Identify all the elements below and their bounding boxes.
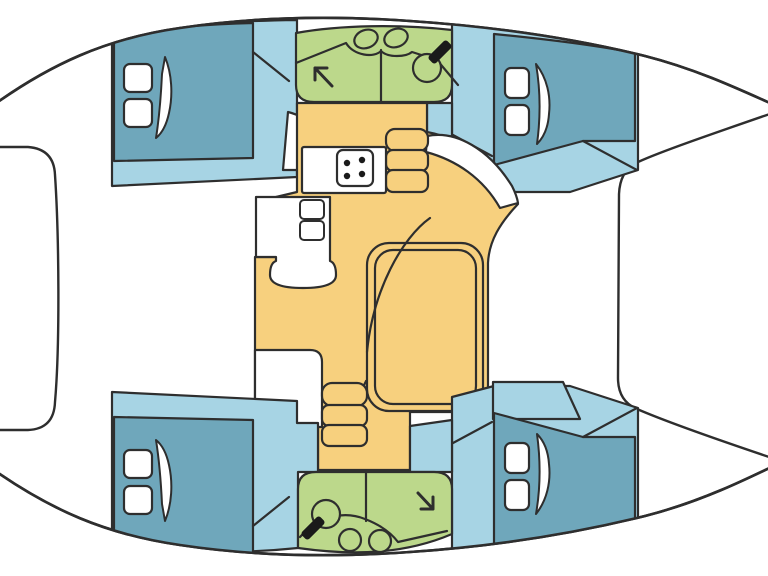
stove-burner-2 bbox=[359, 157, 365, 163]
cockpit bbox=[618, 107, 768, 464]
catamaran-floorplan bbox=[0, 0, 768, 576]
cabin-fwd-port-hatch-2 bbox=[124, 99, 152, 127]
stove-burner-3 bbox=[359, 171, 365, 177]
cabin-aft-port-hatch-1 bbox=[124, 450, 152, 478]
corridor-bottom bbox=[410, 420, 452, 472]
stove-burner-1 bbox=[344, 160, 350, 166]
cabin-fwd-stbd-hatch-1 bbox=[505, 68, 529, 98]
hull-steps-2 bbox=[322, 405, 367, 426]
galley-drawer-2 bbox=[300, 221, 324, 240]
stove bbox=[337, 150, 373, 186]
hull-steps-3 bbox=[322, 425, 367, 446]
hull-steps-1 bbox=[322, 383, 367, 406]
stove-burner-4 bbox=[344, 173, 350, 179]
galley-steps-1 bbox=[386, 129, 428, 151]
floorplan-canvas bbox=[0, 0, 768, 576]
galley-drawer-1 bbox=[300, 200, 324, 219]
bathroom-aft-sink-2 bbox=[369, 530, 391, 552]
galley-steps-2 bbox=[386, 150, 428, 171]
cabin-aft-stbd-hatch-1 bbox=[505, 443, 529, 473]
cabin-aft-stbd-hatch-2 bbox=[505, 480, 529, 510]
cabin-aft-port-hatch-2 bbox=[124, 486, 152, 514]
bathroom-aft-sink-1 bbox=[339, 529, 361, 551]
cabin-fwd-stbd-hatch-2 bbox=[505, 105, 529, 135]
galley-steps-3 bbox=[386, 170, 428, 192]
cabin-fwd-port-hatch-1 bbox=[124, 64, 152, 92]
foredeck-locker bbox=[0, 147, 58, 430]
